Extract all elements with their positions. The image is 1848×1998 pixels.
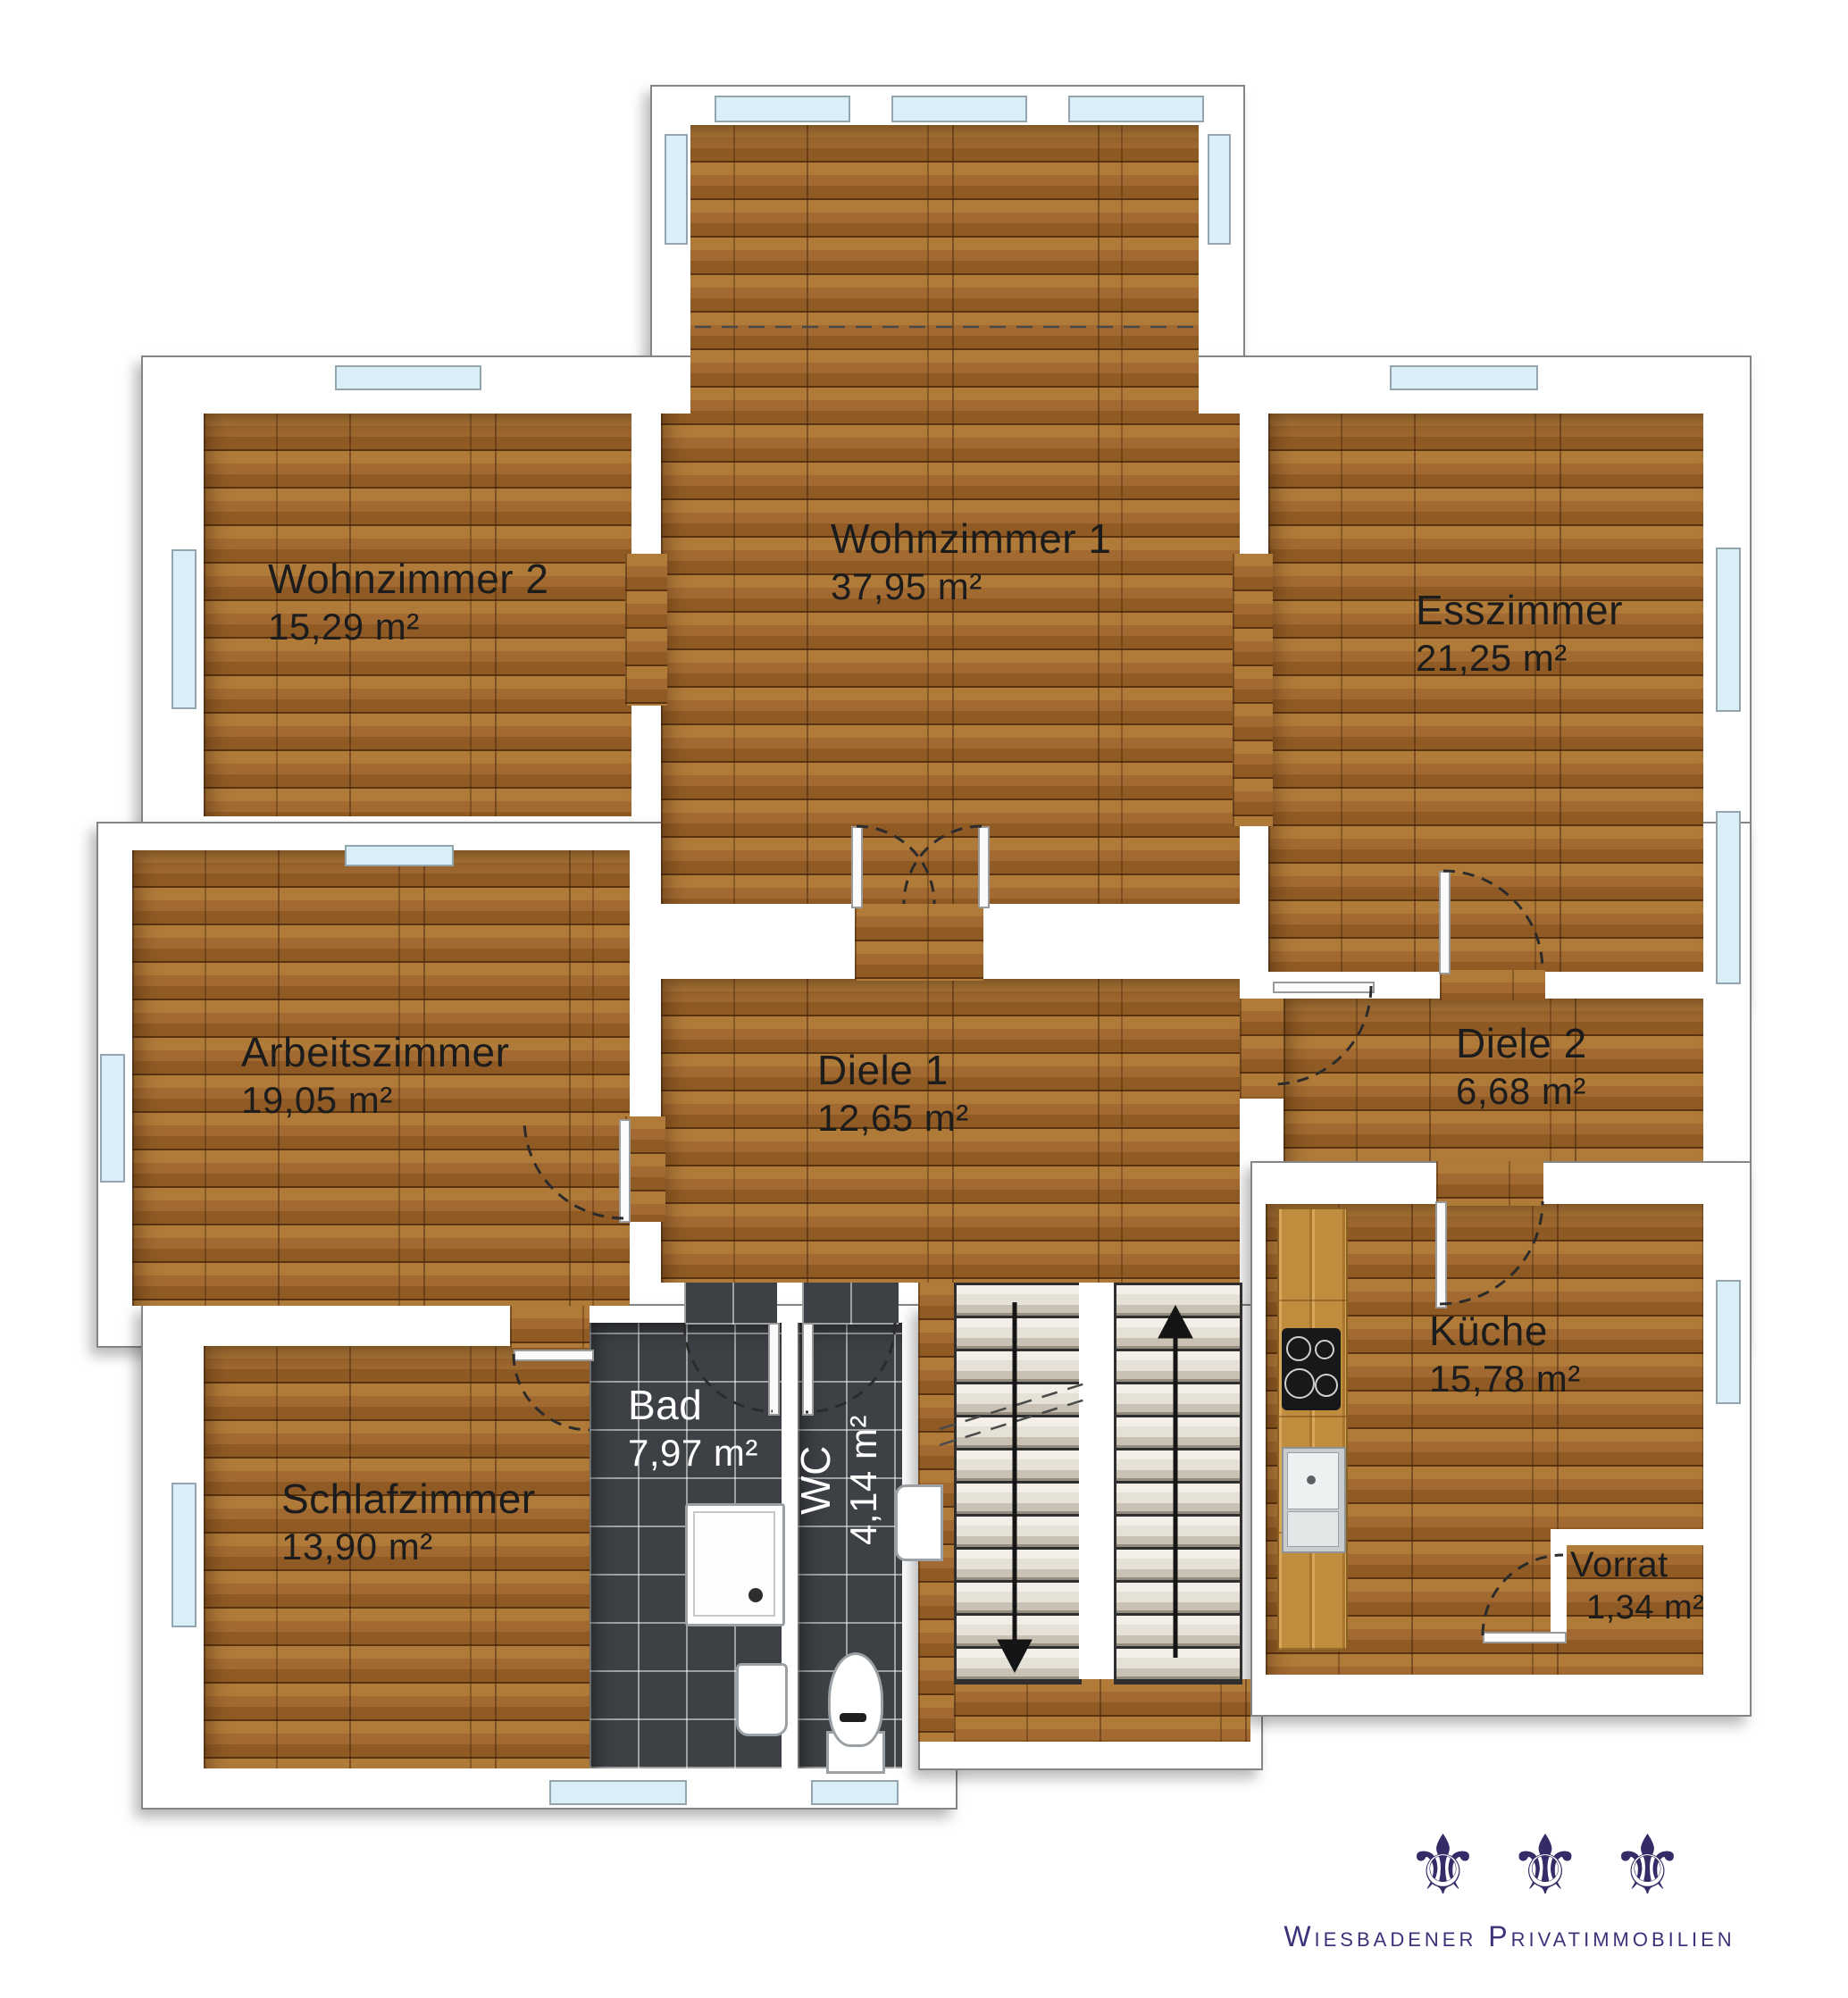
room-name: Bad: [628, 1380, 758, 1430]
door-leaf-arbeitszimmer: [619, 1119, 631, 1223]
window-arbeitszimmer-left: [100, 1054, 125, 1183]
room-name: Esszimmer: [1416, 585, 1623, 635]
window-kueche-right: [1716, 1280, 1741, 1404]
label-arbeitszimmer: Arbeitszimmer 19,05 m²: [241, 1027, 509, 1123]
floor-plan: Wohnzimmer 1 37,95 m² Wohnzimmer 2 15,29…: [0, 0, 1848, 1998]
vorrat-wall-left: [1551, 1529, 1567, 1641]
shower-drain-icon: [748, 1588, 763, 1602]
label-esszimmer: Esszimmer 21,25 m²: [1416, 585, 1623, 681]
opening-esszimmer-diele2: [1440, 970, 1545, 1000]
fleur-de-lis-icon: ⚜: [1509, 1820, 1582, 1911]
label-vorrat: Vorrat 1,34 m²: [1570, 1543, 1704, 1628]
cooktop-burner-icon: [1315, 1374, 1338, 1397]
window-wohnzimmer2-left: [171, 549, 197, 709]
room-name: Wohnzimmer 2: [268, 554, 548, 604]
bad-sink: [736, 1663, 788, 1736]
door-leaf-schlafzimmer: [514, 1350, 594, 1361]
opening-arbeitszimmer-diele1: [625, 1116, 665, 1222]
fleur-de-lis-icon: ⚜: [1406, 1820, 1479, 1911]
agency-logo: ⚜⚜⚜: [1376, 1818, 1715, 1913]
label-diele1: Diele 1 12,65 m²: [817, 1045, 969, 1141]
cooktop-burner-icon: [1286, 1336, 1311, 1361]
door-leaf-diele2: [1273, 982, 1375, 993]
label-wohnzimmer1: Wohnzimmer 1 37,95 m²: [831, 514, 1111, 609]
window-bay-top-2: [891, 96, 1027, 122]
room-area: 13,90 m²: [281, 1524, 536, 1569]
label-diele2: Diele 2 6,68 m²: [1456, 1018, 1587, 1114]
door-leaf-bad: [768, 1323, 780, 1416]
opening-wz1-esszimmer: [1233, 554, 1273, 826]
room-area: 12,65 m²: [817, 1095, 969, 1141]
opening-diele2-kueche: [1436, 1161, 1543, 1206]
window-wc-bottom: [811, 1780, 899, 1805]
stair-flight-up: [1114, 1283, 1242, 1685]
door-leaf-double-right: [978, 826, 990, 908]
door-leaf-double-left: [851, 826, 863, 908]
window-schlafzimmer-left: [171, 1483, 197, 1627]
room-area: 21,25 m²: [1416, 635, 1623, 681]
label-bad: Bad 7,97 m²: [628, 1380, 758, 1476]
agency-brand-name: Wiesbadener Privatimmobilien: [1242, 1920, 1777, 1953]
window-interior-transom: [345, 845, 454, 866]
room-area: 6,68 m²: [1456, 1068, 1587, 1114]
cooktop-burner-icon: [1315, 1340, 1334, 1359]
window-bay-right: [1208, 134, 1231, 245]
room-name: Wohnzimmer 1: [831, 514, 1111, 564]
stair-gap: [1079, 1283, 1114, 1679]
opening-schlafzimmer: [510, 1306, 590, 1348]
opening-wc-door: [802, 1283, 899, 1325]
room-area: 7,97 m²: [628, 1430, 758, 1476]
window-esszimmer-right-1: [1716, 548, 1741, 712]
cooktop-burner-icon: [1284, 1368, 1315, 1399]
kitchen-counter: [1277, 1208, 1348, 1651]
room-name: Arbeitszimmer: [241, 1027, 509, 1077]
floor-esszimmer: [1268, 414, 1703, 972]
room-name: Schlafzimmer: [281, 1474, 536, 1524]
window-bay-left: [665, 134, 688, 245]
label-schlafzimmer: Schlafzimmer 13,90 m²: [281, 1474, 536, 1569]
window-bad-bottom: [549, 1780, 687, 1805]
opening-wz2-wz1: [625, 554, 667, 706]
room-area: 1,34 m²: [1570, 1587, 1704, 1628]
room-area: 15,78 m²: [1429, 1356, 1581, 1401]
window-bay-top-1: [715, 96, 850, 122]
toilet-seat-icon: [840, 1713, 866, 1722]
room-name: Diele 2: [1456, 1018, 1587, 1068]
window-esszimmer-top: [1390, 365, 1538, 390]
room-area: 4,14 m²: [840, 1375, 886, 1585]
shower-tray-inner: [693, 1511, 775, 1617]
window-wohnzimmer2-top: [335, 365, 481, 390]
window-esszimmer-right-2: [1716, 811, 1741, 984]
room-area: 37,95 m²: [831, 564, 1111, 609]
kitchen-faucet-icon: [1307, 1476, 1316, 1484]
opening-wz1-diele1: [855, 904, 983, 981]
label-wohnzimmer2: Wohnzimmer 2 15,29 m²: [268, 554, 548, 649]
window-bay-top-3: [1068, 96, 1204, 122]
toilet-bowl: [828, 1652, 883, 1747]
room-area: 15,29 m²: [268, 604, 548, 649]
room-area: 19,05 m²: [241, 1077, 509, 1123]
room-name: Diele 1: [817, 1045, 969, 1095]
kitchen-sink-drainer: [1287, 1511, 1339, 1547]
door-leaf-kueche: [1435, 1201, 1447, 1308]
room-name: Vorrat: [1570, 1543, 1704, 1587]
floor-below-stairs: [954, 1679, 1250, 1742]
door-leaf-vorrat: [1483, 1632, 1567, 1643]
fleur-de-lis-icon: ⚜: [1610, 1820, 1684, 1911]
room-name: Küche: [1429, 1306, 1581, 1356]
room-name: WC: [790, 1375, 840, 1585]
stair-flight-down: [954, 1283, 1082, 1685]
opening-bad-door: [684, 1283, 777, 1325]
label-wc: WC 4,14 m²: [790, 1375, 907, 1585]
label-kueche: Küche 15,78 m²: [1429, 1306, 1581, 1401]
door-leaf-esszimmer: [1439, 871, 1451, 974]
opening-diele1-diele2: [1240, 999, 1284, 1099]
